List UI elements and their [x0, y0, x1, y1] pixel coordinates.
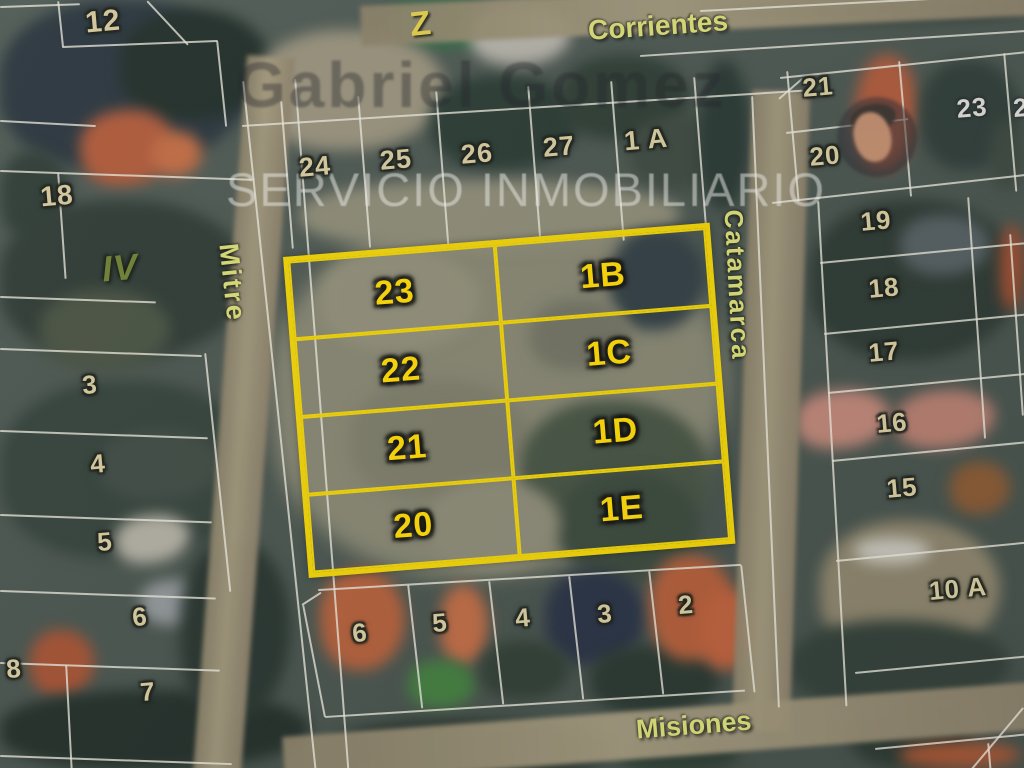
parcel-number-21: 21 [801, 70, 835, 104]
parcel-number-2: 2 [1012, 92, 1024, 124]
parcel-number-18: 18 [39, 179, 75, 214]
parcel-number-6: 6 [131, 601, 149, 633]
parcel-number-4: 4 [89, 448, 107, 480]
parcel-number-4: 4 [514, 602, 532, 634]
parcel-number-3: 3 [596, 598, 614, 630]
parcel-number-1a: 1 A [623, 123, 670, 158]
parcel-number-17: 17 [867, 335, 901, 369]
parcel-number-16: 16 [875, 406, 909, 440]
parcel-number-23: 23 [955, 91, 989, 125]
parcel-number-6: 6 [351, 617, 369, 649]
parcel-number-5: 5 [431, 607, 449, 639]
highlight-cell-20: 20 [307, 478, 519, 572]
lot-label-1e: 1E [598, 487, 645, 529]
parcel-number-20: 20 [808, 139, 842, 173]
highlight-cell-1e: 1E [513, 461, 730, 556]
parcel-number-3: 3 [81, 369, 99, 401]
lot-label-21: 21 [386, 427, 429, 469]
lot-label-20: 20 [392, 504, 435, 546]
lot-label-1d: 1D [591, 410, 639, 453]
parcel-number-19: 19 [859, 204, 893, 238]
parcel-number-26: 26 [460, 137, 495, 171]
parcel-number-15: 15 [885, 471, 919, 505]
parcel-number-iv: IV [100, 246, 140, 291]
parcel-number-25: 25 [379, 143, 414, 177]
highlighted-lots-block: 23 1B 22 1C 21 1D 20 1E [283, 223, 735, 578]
parcel-number-12: 12 [84, 4, 122, 41]
lot-label-1c: 1C [585, 332, 633, 375]
parcel-number-10a: 10 A [928, 571, 988, 607]
parcel-number-8: 8 [5, 653, 23, 685]
parcel-number-27: 27 [542, 130, 577, 164]
lot-label-22: 22 [379, 349, 422, 391]
parcel-number-5: 5 [96, 526, 114, 558]
lot-label-23: 23 [373, 271, 416, 313]
parcel-number-24: 24 [298, 150, 333, 184]
parcel-number-2: 2 [677, 589, 695, 621]
parcel-number-7: 7 [139, 676, 157, 708]
lot-label-1b: 1B [579, 254, 627, 297]
parcel-number-18: 18 [867, 271, 901, 305]
satellite-map: Gabriel Gomez SERVICIO INMOBILIARIO Z 12… [0, 0, 1024, 768]
